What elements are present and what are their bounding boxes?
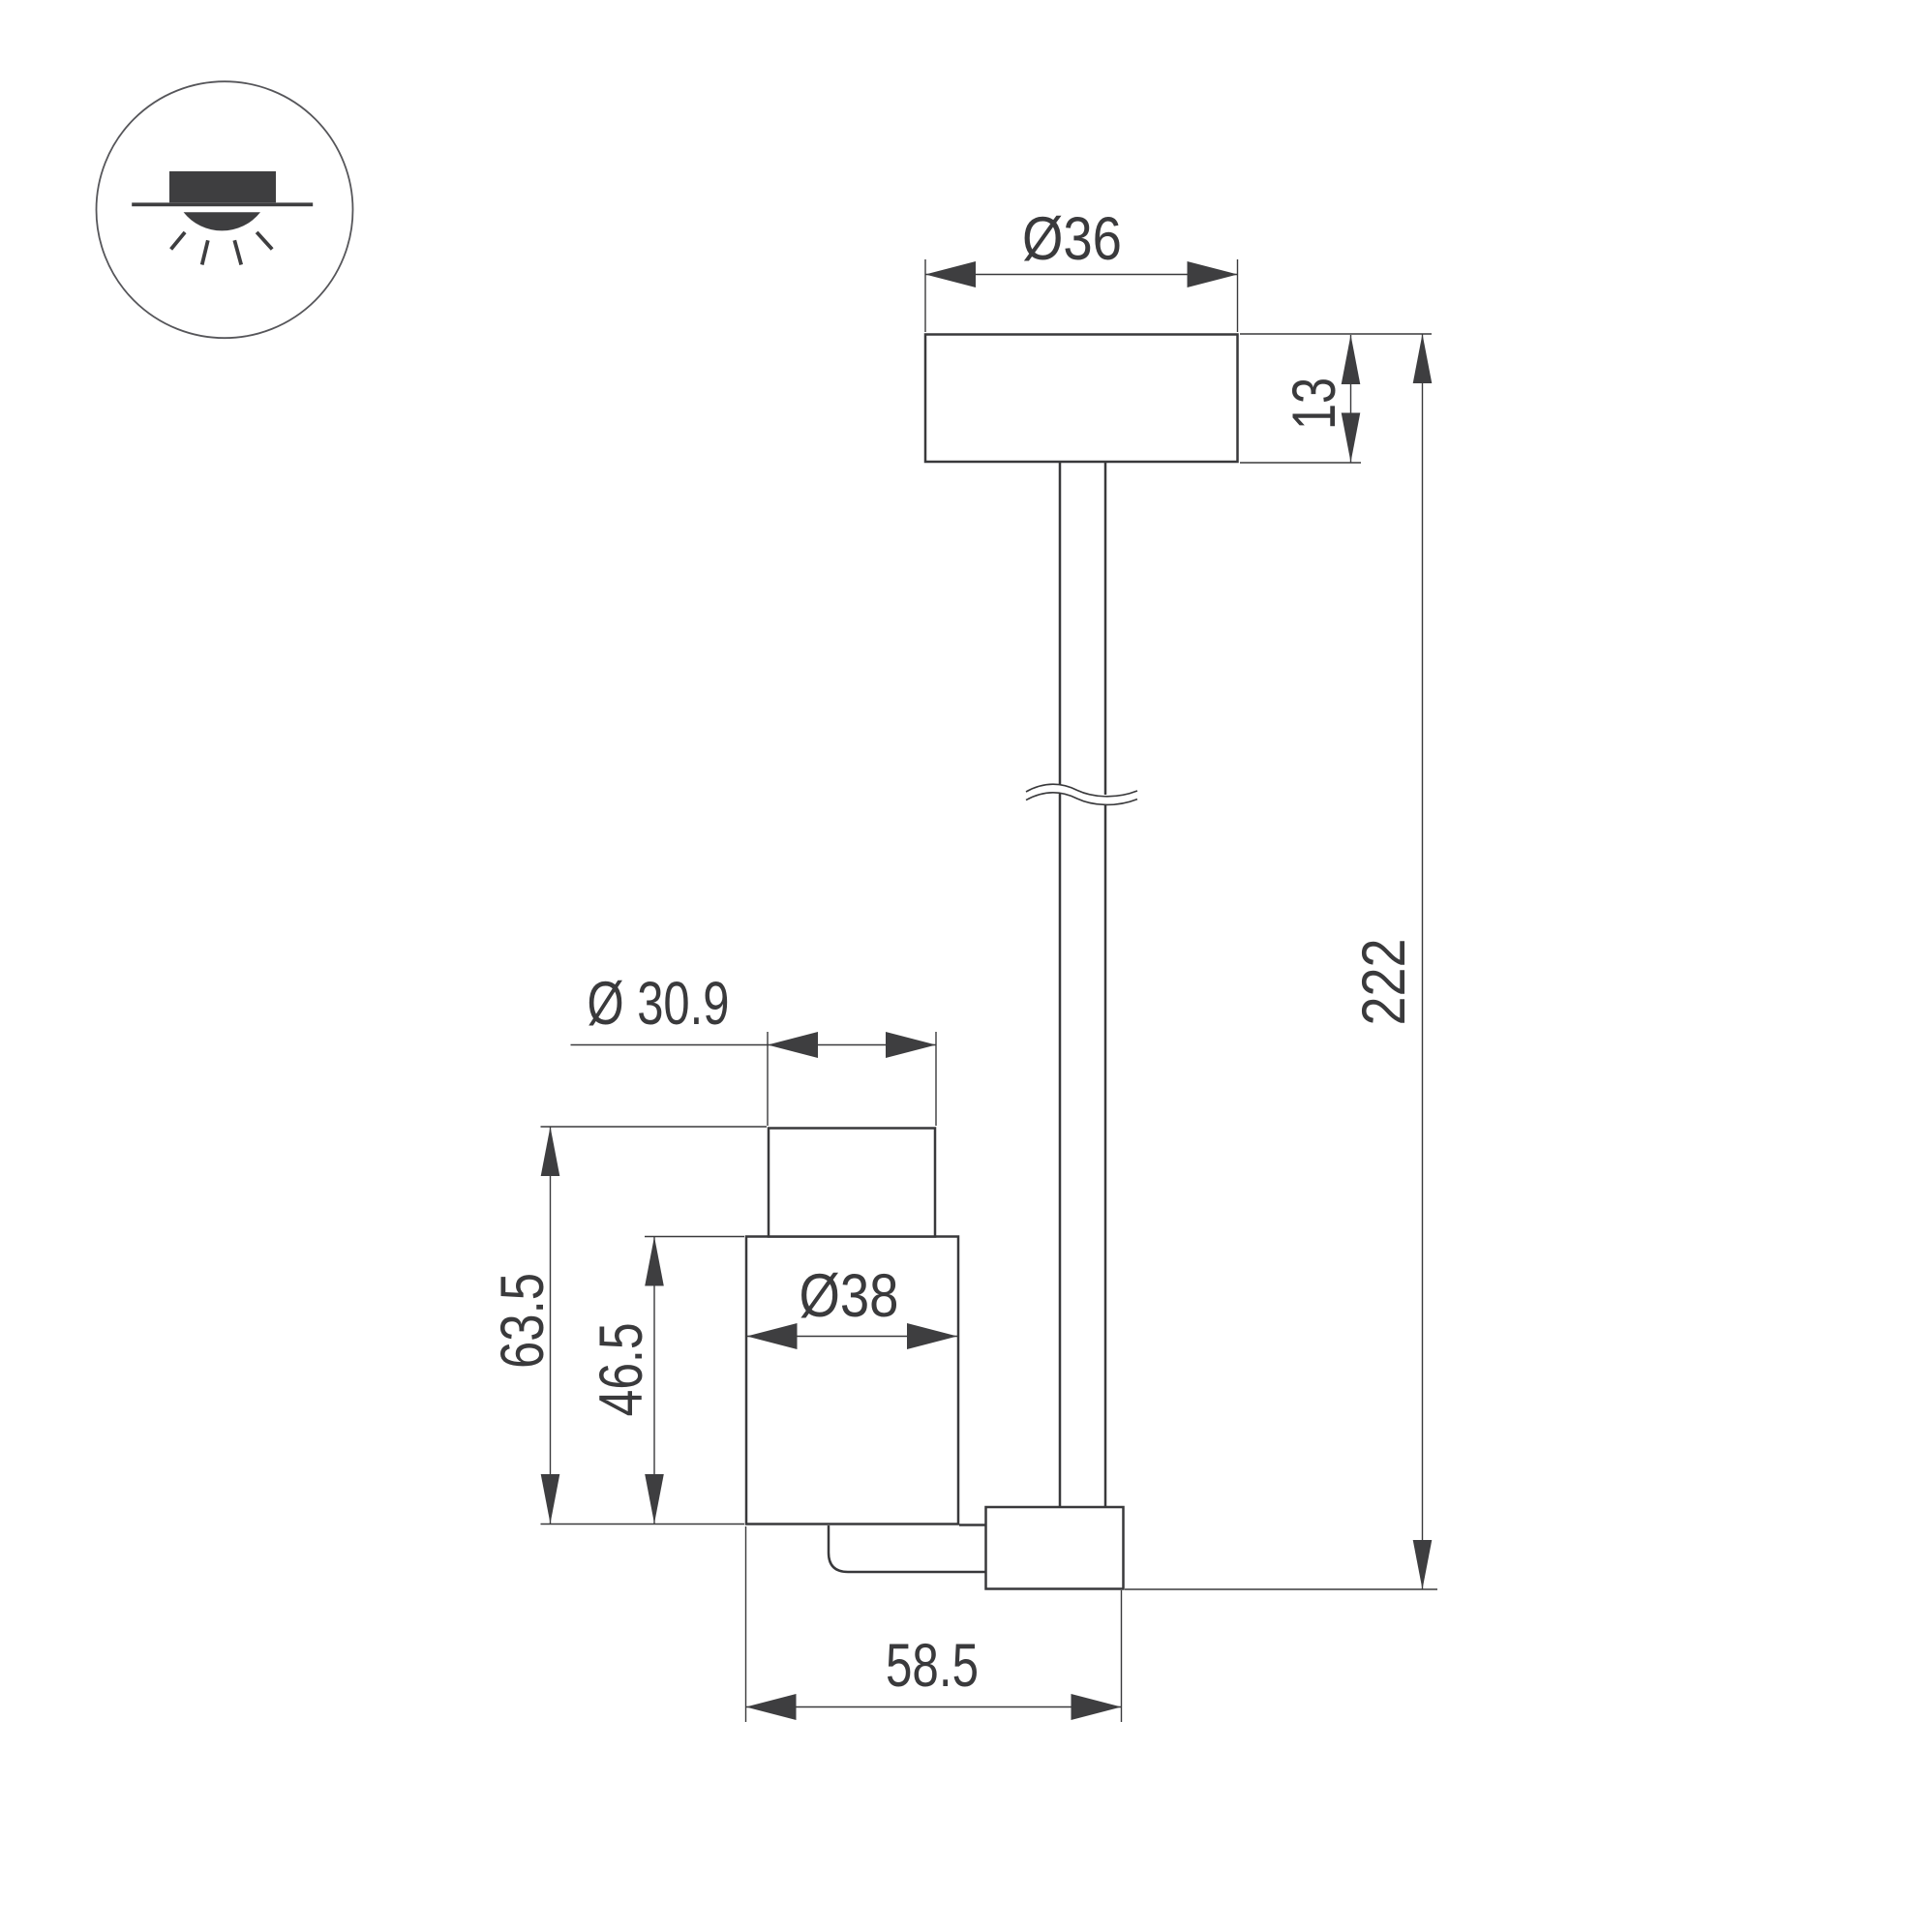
svg-text:222: 222 (1350, 939, 1418, 1026)
svg-text:13: 13 (1281, 377, 1348, 430)
svg-text:63.5: 63.5 (489, 1273, 557, 1369)
svg-text:58.5: 58.5 (886, 1632, 979, 1700)
svg-text:Ø 30.9: Ø 30.9 (588, 970, 730, 1038)
svg-text:Ø36: Ø36 (1022, 205, 1122, 273)
svg-text:Ø38: Ø38 (800, 1262, 899, 1330)
svg-text:46.5: 46.5 (588, 1322, 655, 1416)
